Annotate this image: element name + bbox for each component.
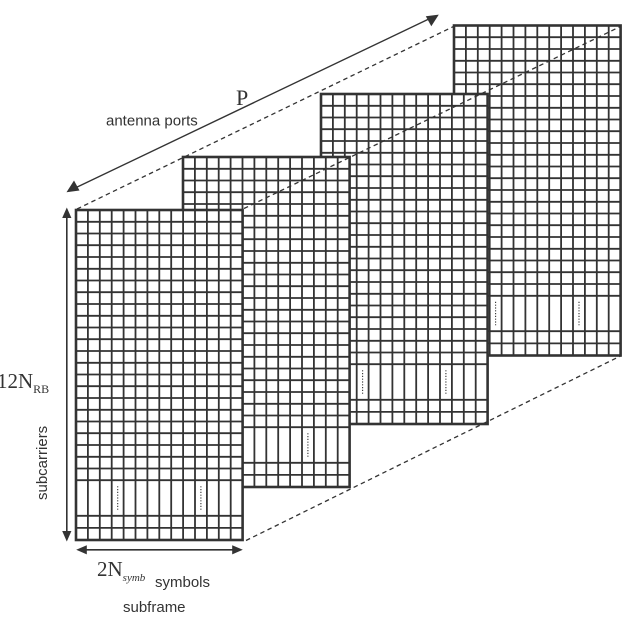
svg-text:subframe: subframe	[123, 599, 186, 616]
svg-text:P: P	[236, 85, 248, 110]
svg-text:antenna ports: antenna ports	[106, 113, 198, 130]
svg-text:subcarriers: subcarriers	[34, 426, 51, 500]
svg-text:symbols: symbols	[155, 574, 210, 591]
